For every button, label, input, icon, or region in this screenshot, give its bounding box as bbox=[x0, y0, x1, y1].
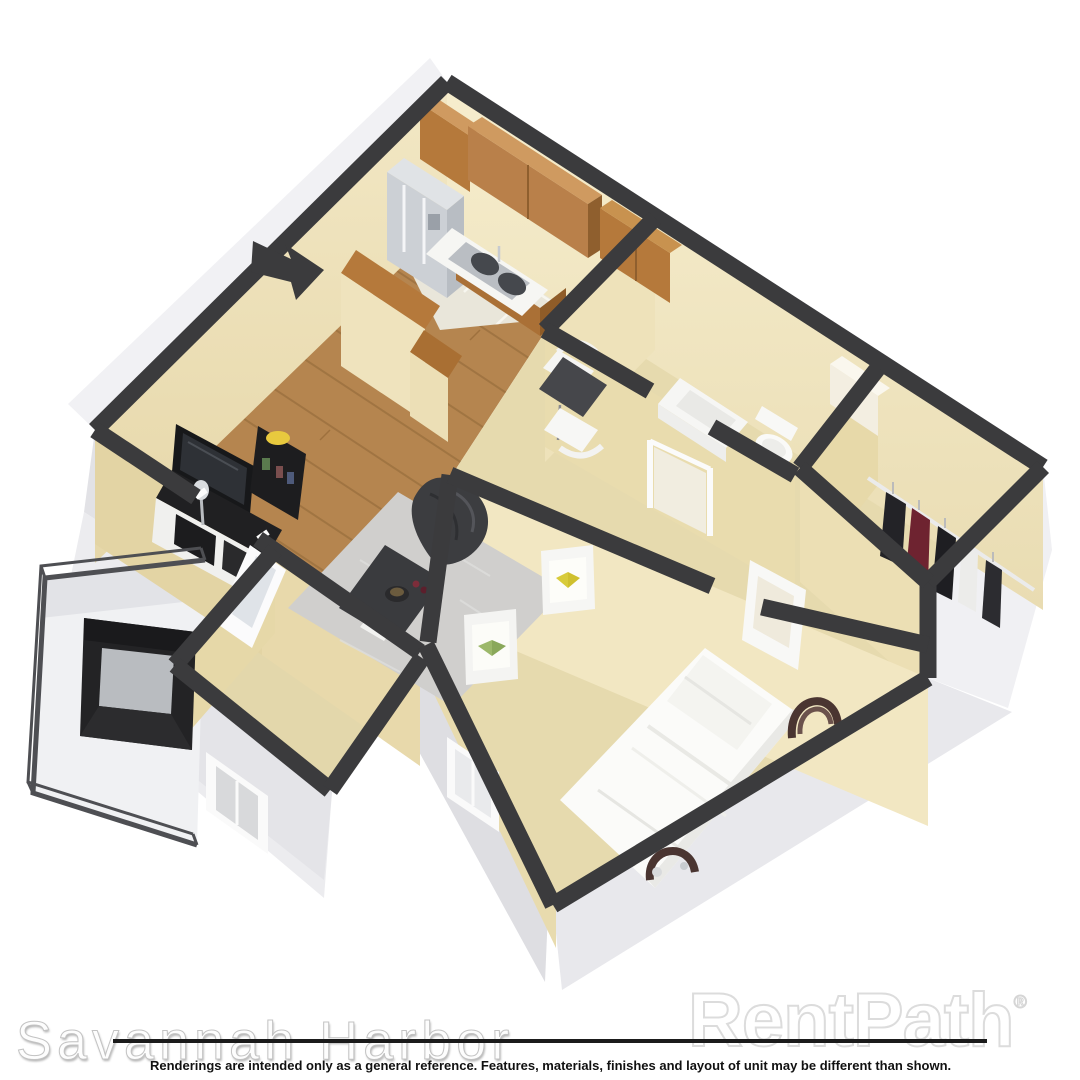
floorplan-image: RentPath® Savannah Harbor Renderings are… bbox=[0, 0, 1080, 1080]
divider-line bbox=[113, 1039, 987, 1043]
rentpath-watermark: RentPath® bbox=[688, 983, 1026, 1059]
wall-art-yellow bbox=[541, 545, 595, 615]
floorplan-3d-rendering bbox=[0, 0, 1080, 1080]
wall-art-green bbox=[464, 609, 518, 685]
disclaimer-text: Renderings are intended only as a genera… bbox=[150, 1058, 995, 1074]
patio-armchair bbox=[80, 618, 196, 750]
registered-mark: ® bbox=[1014, 992, 1026, 1012]
